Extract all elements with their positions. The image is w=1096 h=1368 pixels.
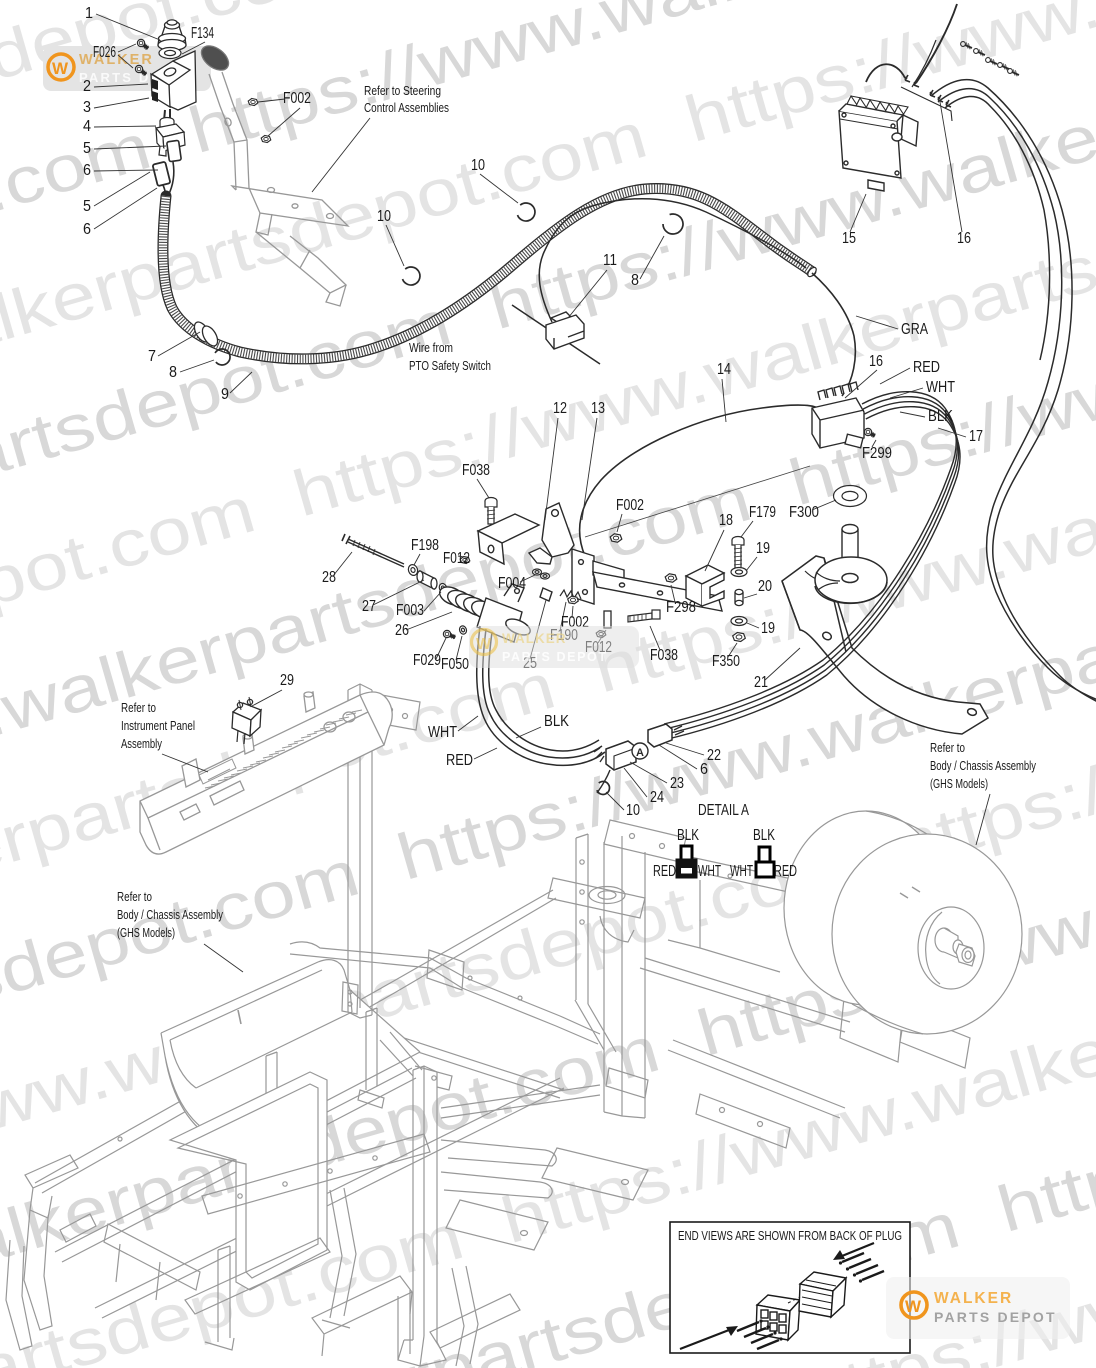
svg-text:WALKER: WALKER: [79, 52, 154, 68]
svg-text:15: 15: [842, 230, 856, 247]
svg-text:RED: RED: [446, 752, 473, 769]
svg-text:WHT: WHT: [730, 863, 753, 880]
svg-text:F299: F299: [862, 445, 892, 462]
svg-text:F300: F300: [789, 504, 819, 521]
svg-text:F026: F026: [93, 44, 116, 61]
svg-text:10: 10: [377, 208, 391, 225]
svg-text:Control Assemblies: Control Assemblies: [364, 101, 449, 115]
svg-text:A: A: [636, 747, 644, 759]
svg-text:5: 5: [83, 140, 91, 157]
svg-text:5: 5: [83, 198, 91, 215]
svg-text:GRA: GRA: [901, 321, 928, 338]
svg-text:6: 6: [83, 221, 91, 238]
svg-text:7: 7: [148, 348, 156, 365]
svg-text:PTO Safety Switch: PTO Safety Switch: [409, 359, 491, 373]
svg-text:Refer to: Refer to: [117, 890, 152, 904]
svg-text:W: W: [52, 59, 69, 78]
svg-text:2: 2: [83, 78, 91, 95]
svg-text:WHT: WHT: [698, 863, 721, 880]
svg-text:BLK: BLK: [677, 827, 699, 844]
svg-text:WALKER: WALKER: [502, 631, 567, 646]
svg-text:27: 27: [362, 598, 376, 615]
svg-text:WHT: WHT: [428, 724, 457, 741]
svg-text:PARTS DEPOT: PARTS DEPOT: [502, 650, 608, 664]
svg-text:24: 24: [650, 789, 664, 806]
svg-text:END VIEWS ARE SHOWN FROM BACK: END VIEWS ARE SHOWN FROM BACK OF PLUG: [678, 1229, 902, 1243]
svg-text:4: 4: [83, 118, 91, 135]
svg-text:DETAIL A: DETAIL A: [698, 802, 749, 819]
svg-text:14: 14: [717, 361, 731, 378]
svg-text:PARTS DEPOT: PARTS DEPOT: [934, 1309, 1057, 1325]
svg-text:11: 11: [603, 252, 617, 269]
svg-text:12: 12: [553, 400, 567, 417]
svg-text:19: 19: [761, 620, 775, 637]
svg-text:20: 20: [758, 578, 772, 595]
svg-text:WALKER: WALKER: [934, 1290, 1013, 1307]
svg-text:F298: F298: [666, 599, 696, 616]
svg-text:W: W: [905, 1297, 922, 1316]
svg-text:Wire from: Wire from: [409, 341, 453, 355]
svg-text:10: 10: [471, 157, 485, 174]
svg-text:1: 1: [85, 5, 93, 22]
svg-text:F029: F029: [413, 652, 441, 669]
svg-text:23: 23: [670, 775, 684, 792]
svg-text:F198: F198: [411, 537, 439, 554]
svg-text:Refer to: Refer to: [121, 701, 156, 715]
svg-text:22: 22: [707, 747, 721, 764]
svg-text:F038: F038: [462, 462, 490, 479]
svg-text:21: 21: [754, 674, 768, 691]
svg-text:F179: F179: [749, 504, 776, 521]
svg-text:BLK: BLK: [753, 827, 775, 844]
svg-text:Refer to Steering: Refer to Steering: [364, 84, 441, 98]
svg-text:W: W: [476, 636, 492, 653]
svg-text:RED: RED: [653, 863, 676, 880]
svg-text:F050: F050: [441, 656, 469, 673]
svg-text:F003: F003: [396, 602, 424, 619]
svg-text:16: 16: [869, 353, 883, 370]
svg-text:6: 6: [83, 162, 91, 179]
svg-text:(GHS Models): (GHS Models): [930, 777, 988, 791]
svg-text:16: 16: [957, 230, 971, 247]
svg-text:6: 6: [700, 761, 708, 778]
svg-text:F134: F134: [191, 25, 214, 42]
svg-text:RED: RED: [913, 359, 940, 376]
svg-text:8: 8: [169, 364, 177, 381]
svg-text:F004: F004: [498, 575, 526, 592]
svg-text:Instrument Panel: Instrument Panel: [121, 719, 195, 733]
svg-text:9: 9: [221, 386, 229, 403]
svg-text:Assembly: Assembly: [121, 737, 163, 751]
svg-text:3: 3: [83, 99, 91, 116]
svg-text:29: 29: [280, 672, 294, 689]
svg-text:(GHS Models): (GHS Models): [117, 926, 175, 940]
svg-text:26: 26: [395, 622, 409, 639]
svg-text:13: 13: [591, 400, 605, 417]
svg-text:RED: RED: [774, 863, 797, 880]
svg-text:Body / Chassis Assembly: Body / Chassis Assembly: [930, 759, 1037, 773]
svg-text:8: 8: [631, 272, 639, 289]
svg-text:BLK: BLK: [544, 713, 569, 730]
svg-text:19: 19: [756, 540, 770, 557]
svg-text:F012: F012: [443, 550, 470, 567]
svg-text:F002: F002: [616, 497, 644, 514]
svg-text:F350: F350: [712, 653, 740, 670]
svg-text:18: 18: [719, 512, 733, 529]
svg-text:10: 10: [626, 802, 640, 819]
svg-text:F038: F038: [650, 647, 678, 664]
svg-text:Body / Chassis Assembly: Body / Chassis Assembly: [117, 908, 224, 922]
svg-text:28: 28: [322, 569, 336, 586]
svg-text:17: 17: [969, 428, 983, 445]
svg-text:Refer to: Refer to: [930, 741, 965, 755]
svg-text:F002: F002: [283, 90, 311, 107]
svg-text:WHT: WHT: [926, 379, 955, 396]
svg-text:BLK: BLK: [928, 408, 953, 425]
